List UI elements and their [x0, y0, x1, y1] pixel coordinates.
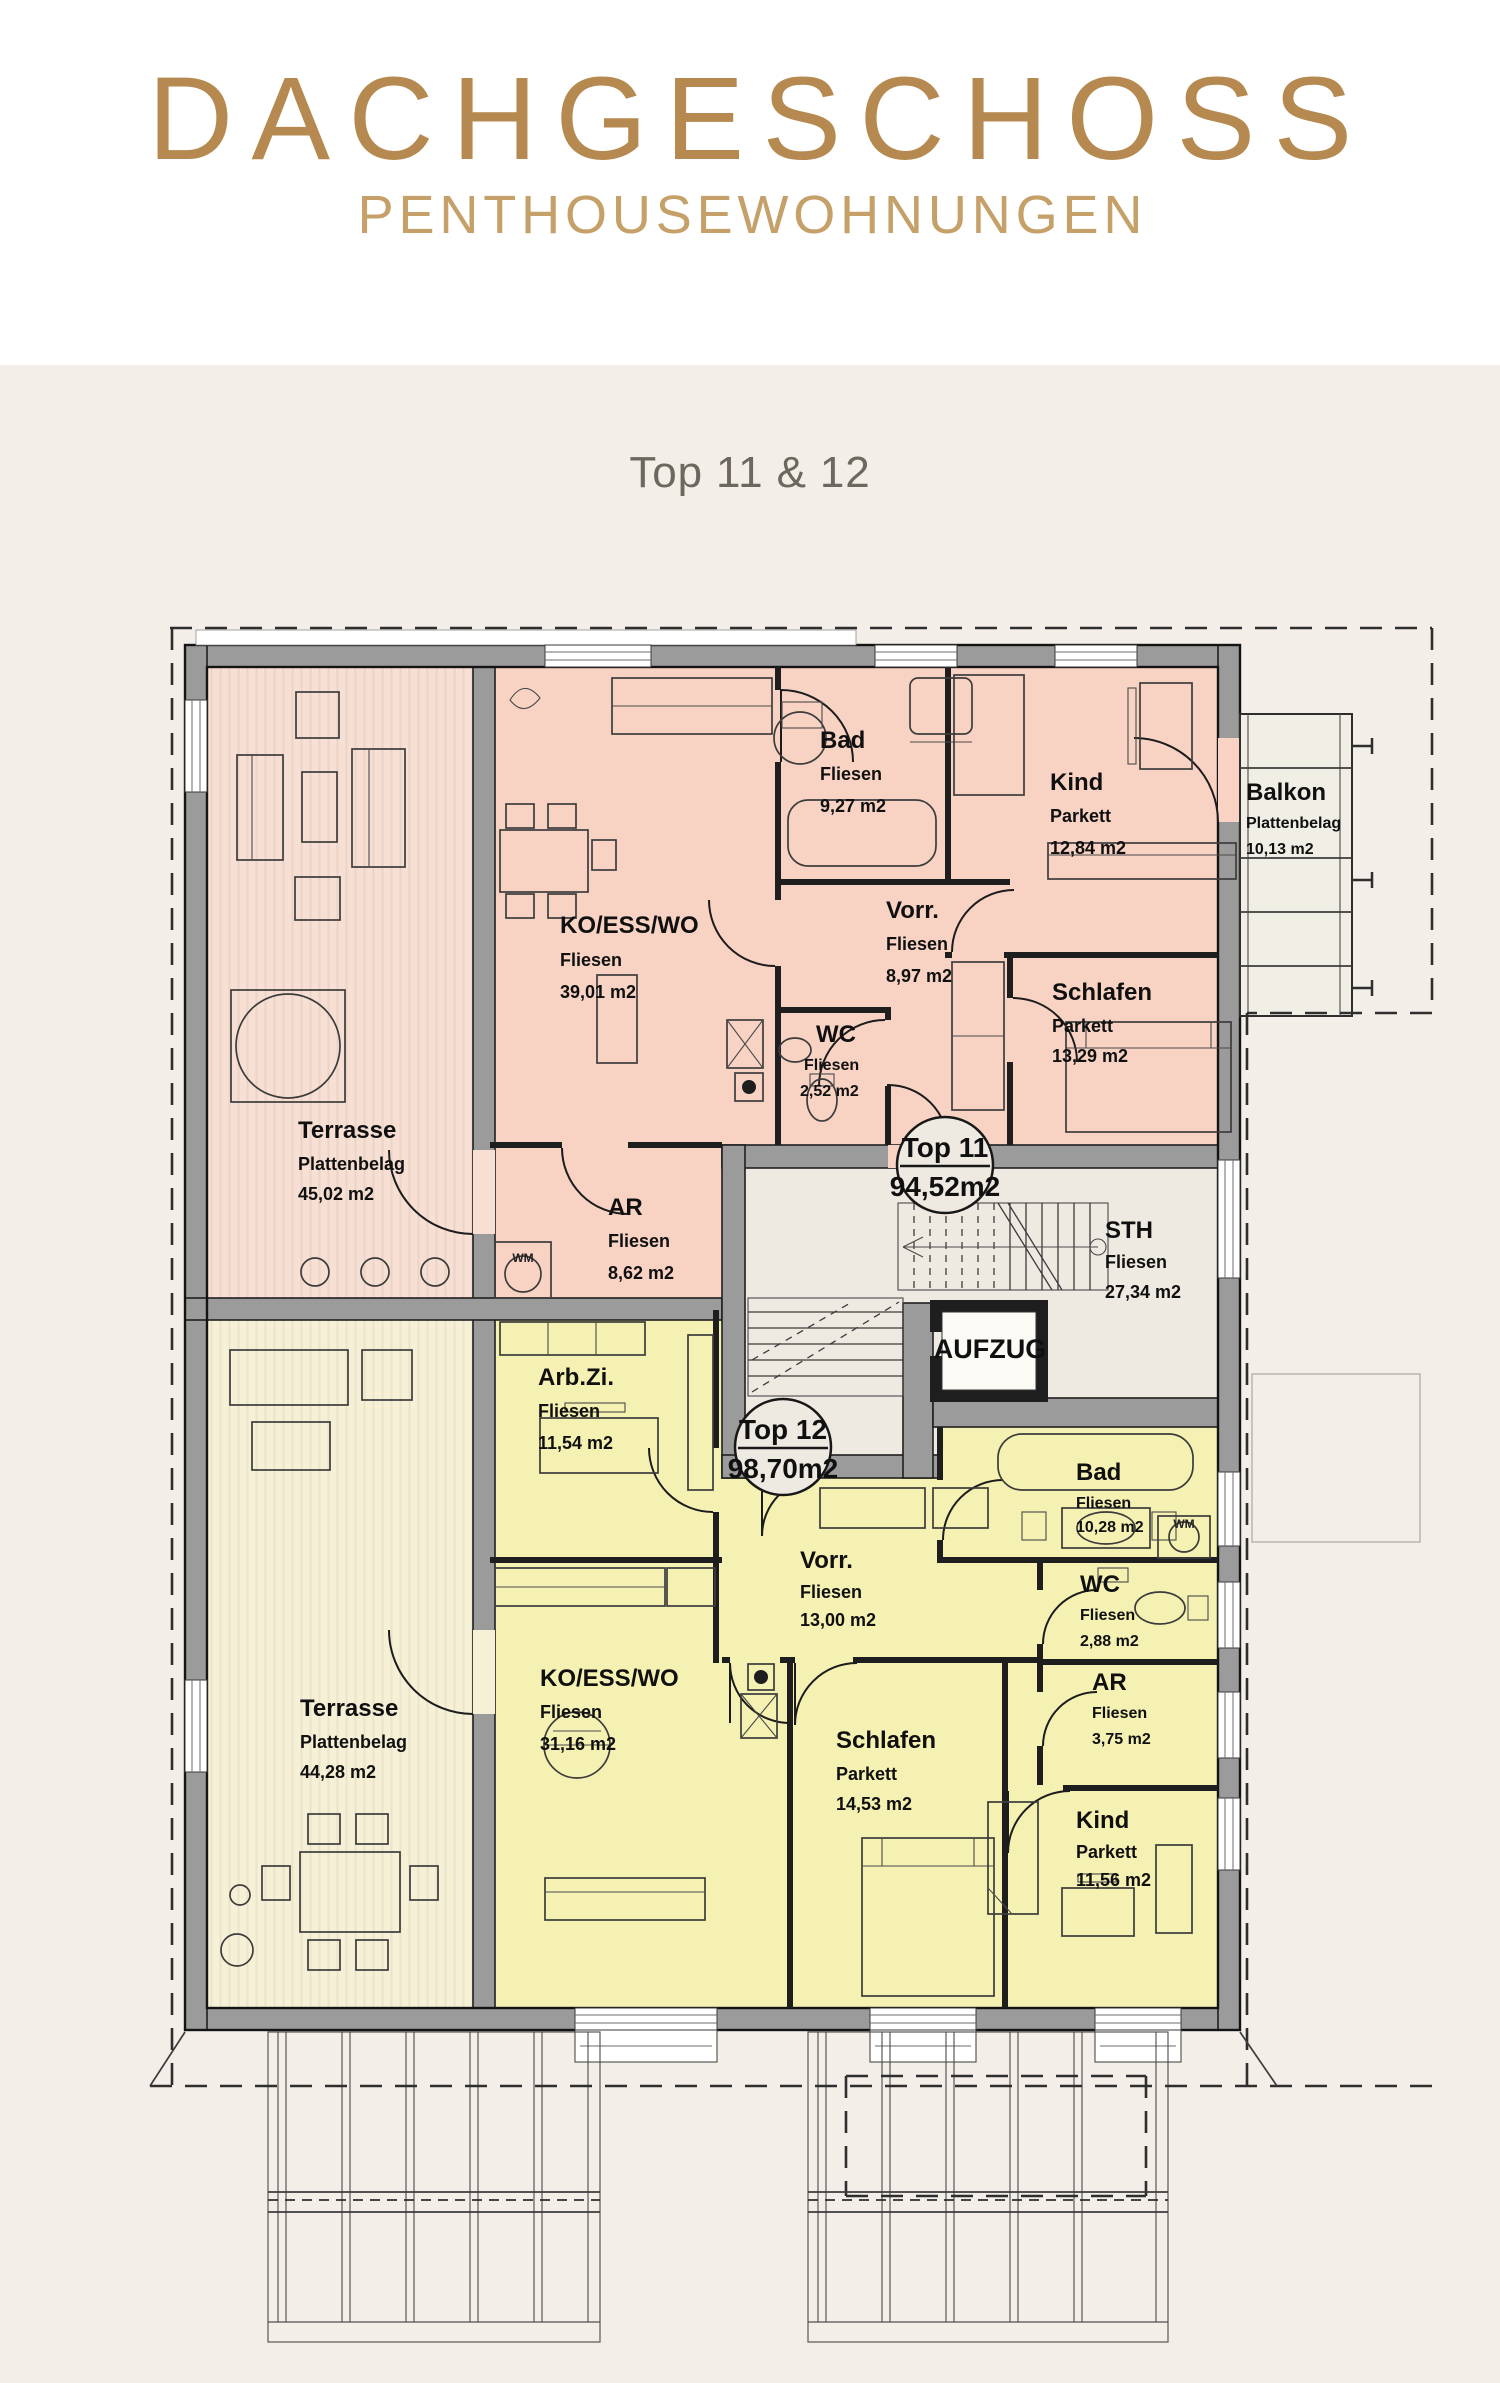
svg-text:Bad: Bad	[820, 727, 865, 754]
svg-text:Fliesen: Fliesen	[820, 764, 882, 784]
svg-text:Fliesen: Fliesen	[1092, 1705, 1147, 1722]
svg-text:13,29 m2: 13,29 m2	[1052, 1046, 1128, 1066]
svg-text:Fliesen: Fliesen	[560, 950, 622, 970]
svg-text:3,75 m2: 3,75 m2	[1092, 1731, 1151, 1748]
svg-text:Arb.Zi.: Arb.Zi.	[538, 1364, 614, 1391]
svg-text:11,56 m2: 11,56 m2	[1076, 1870, 1151, 1890]
svg-text:10,13 m2: 10,13 m2	[1246, 841, 1314, 858]
svg-text:KO/ESS/WO: KO/ESS/WO	[540, 1665, 679, 1692]
svg-text:KO/ESS/WO: KO/ESS/WO	[560, 912, 699, 939]
svg-text:Schlafen: Schlafen	[1052, 979, 1152, 1006]
balcony-right	[1240, 714, 1420, 1542]
svg-text:11,54 m2: 11,54 m2	[538, 1433, 613, 1453]
floor-plan-page: DACHGESCHOSS PENTHOUSEWOHNUNGEN Top 11 &…	[0, 0, 1500, 2383]
room-label-aufzug: AUFZUG	[934, 1334, 1046, 1364]
svg-text:Fliesen: Fliesen	[1080, 1607, 1135, 1624]
svg-text:Fliesen: Fliesen	[1076, 1495, 1131, 1512]
svg-text:Parkett: Parkett	[1050, 806, 1111, 826]
svg-text:39,01 m2: 39,01 m2	[560, 982, 636, 1002]
floor-plan-drawing: WM WM	[0, 0, 1500, 2383]
svg-text:Fliesen: Fliesen	[804, 1057, 859, 1074]
svg-text:Fliesen: Fliesen	[538, 1401, 600, 1421]
svg-text:WC: WC	[816, 1021, 856, 1048]
svg-text:Kind: Kind	[1076, 1807, 1129, 1834]
unit-label: Top 12	[739, 1414, 827, 1445]
svg-text:Fliesen: Fliesen	[608, 1231, 670, 1251]
svg-text:Bad: Bad	[1076, 1459, 1121, 1486]
svg-text:Schlafen: Schlafen	[836, 1727, 936, 1754]
svg-text:Fliesen: Fliesen	[886, 934, 948, 954]
svg-text:27,34 m2: 27,34 m2	[1105, 1282, 1181, 1302]
svg-text:Parkett: Parkett	[1076, 1842, 1137, 1862]
svg-text:13,00 m2: 13,00 m2	[800, 1610, 876, 1630]
svg-text:31,16 m2: 31,16 m2	[540, 1734, 616, 1754]
unit-area: 98,70m2	[728, 1453, 839, 1484]
svg-text:Vorr.: Vorr.	[800, 1547, 853, 1574]
svg-text:Plattenbelag: Plattenbelag	[1246, 815, 1341, 832]
svg-text:2,88 m2: 2,88 m2	[1080, 1633, 1139, 1650]
wm-icon: WM	[512, 1251, 533, 1265]
svg-text:STH: STH	[1105, 1217, 1153, 1244]
svg-text:10,28 m2: 10,28 m2	[1076, 1519, 1144, 1536]
svg-text:Terrasse: Terrasse	[298, 1117, 396, 1144]
svg-text:14,53 m2: 14,53 m2	[836, 1794, 912, 1814]
unit-badge-top11: Top 11 94,52m2	[890, 1117, 1001, 1213]
svg-text:Balkon: Balkon	[1246, 779, 1326, 806]
wm-icon: WM	[1173, 1517, 1194, 1531]
svg-text:Plattenbelag: Plattenbelag	[300, 1732, 407, 1752]
svg-text:AR: AR	[608, 1194, 643, 1221]
svg-text:8,97 m2: 8,97 m2	[886, 966, 952, 986]
svg-text:2,52 m2: 2,52 m2	[800, 1083, 859, 1100]
svg-text:AUFZUG: AUFZUG	[934, 1334, 1046, 1364]
pergolas-bottom	[268, 2032, 1168, 2342]
svg-text:8,62 m2: 8,62 m2	[608, 1263, 674, 1283]
unit-area: 94,52m2	[890, 1171, 1001, 1202]
svg-text:Parkett: Parkett	[836, 1764, 897, 1784]
unit-label: Top 11	[902, 1132, 989, 1163]
svg-text:Parkett: Parkett	[1052, 1016, 1113, 1036]
svg-text:45,02 m2: 45,02 m2	[298, 1184, 374, 1204]
svg-text:Vorr.: Vorr.	[886, 897, 939, 924]
svg-text:Fliesen: Fliesen	[1105, 1252, 1167, 1272]
svg-text:12,84 m2: 12,84 m2	[1050, 838, 1126, 858]
svg-text:44,28 m2: 44,28 m2	[300, 1762, 376, 1782]
svg-text:Fliesen: Fliesen	[540, 1702, 602, 1722]
svg-text:9,27 m2: 9,27 m2	[820, 796, 886, 816]
svg-text:AR: AR	[1092, 1669, 1127, 1696]
svg-text:Terrasse: Terrasse	[300, 1695, 398, 1722]
unit-badge-top12: Top 12 98,70m2	[728, 1399, 839, 1495]
svg-text:Kind: Kind	[1050, 769, 1103, 796]
svg-text:WC: WC	[1080, 1571, 1120, 1598]
svg-text:Plattenbelag: Plattenbelag	[298, 1154, 405, 1174]
svg-text:Fliesen: Fliesen	[800, 1582, 862, 1602]
